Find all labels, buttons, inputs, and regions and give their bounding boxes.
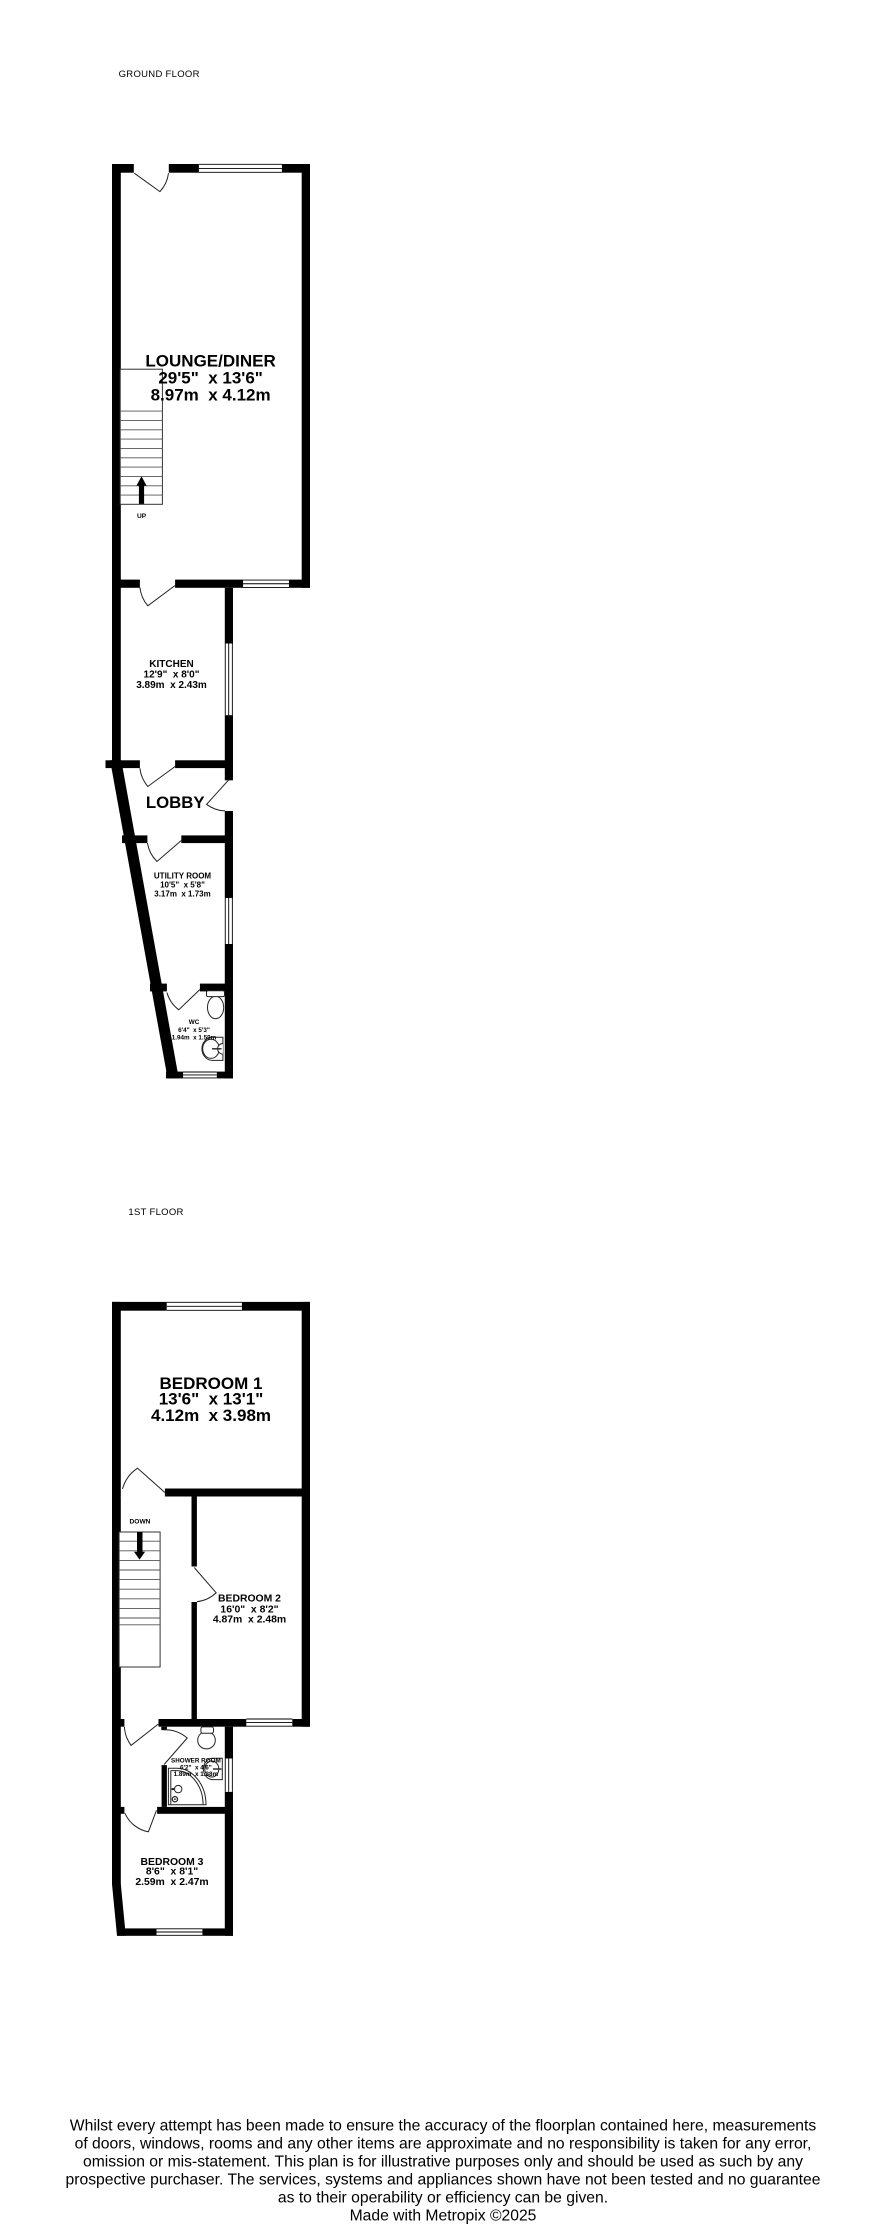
svg-text:KITCHEN: KITCHEN <box>149 659 193 670</box>
svg-text:1.94m x 1.59m: 1.94m x 1.59m <box>172 1034 217 1041</box>
svg-text:10'5" x 5'8": 10'5" x 5'8" <box>160 881 205 890</box>
svg-text:4.12m x 3.98m: 4.12m x 3.98m <box>151 1406 271 1425</box>
svg-text:of doors, windows, rooms and a: of doors, windows, rooms and any other i… <box>75 2136 812 2153</box>
svg-text:3.89m x 2.43m: 3.89m x 2.43m <box>136 680 207 691</box>
svg-text:prospective purchaser. The ser: prospective purchaser. The services, sys… <box>66 2172 821 2189</box>
svg-text:1ST FLOOR: 1ST FLOOR <box>128 1207 183 1218</box>
svg-text:6'4" x 5'3": 6'4" x 5'3" <box>178 1027 210 1034</box>
svg-text:4.87m x 2.48m: 4.87m x 2.48m <box>213 1615 286 1626</box>
svg-text:WC: WC <box>189 1019 200 1026</box>
svg-text:8.97m x 4.12m: 8.97m x 4.12m <box>151 386 271 405</box>
svg-text:2.59m x 2.47m: 2.59m x 2.47m <box>135 1877 208 1888</box>
svg-text:UP: UP <box>137 513 147 520</box>
svg-text:UTILITY ROOM: UTILITY ROOM <box>154 872 212 881</box>
svg-text:as to their operability or eff: as to their operability or efficiency ca… <box>278 2190 608 2207</box>
svg-text:DOWN: DOWN <box>130 1519 151 1526</box>
svg-text:1.89m x 1.38m: 1.89m x 1.38m <box>174 1771 219 1778</box>
svg-text:GROUND FLOOR: GROUND FLOOR <box>119 69 200 80</box>
svg-text:Whilst every attempt has been: Whilst every attempt has been made to en… <box>70 2118 817 2135</box>
svg-text:LOBBY: LOBBY <box>146 793 205 812</box>
svg-text:Made with Metropix ©2025: Made with Metropix ©2025 <box>350 2208 537 2225</box>
svg-text:12'9" x 8'0": 12'9" x 8'0" <box>144 670 200 681</box>
svg-text:3.17m x 1.73m: 3.17m x 1.73m <box>154 890 210 899</box>
svg-text:omission or mis-statement. Thi: omission or mis-statement. This plan is … <box>83 2154 803 2171</box>
svg-text:BEDROOM 2: BEDROOM 2 <box>218 1593 281 1604</box>
svg-text:8'6" x 8'1": 8'6" x 8'1" <box>146 1866 198 1877</box>
